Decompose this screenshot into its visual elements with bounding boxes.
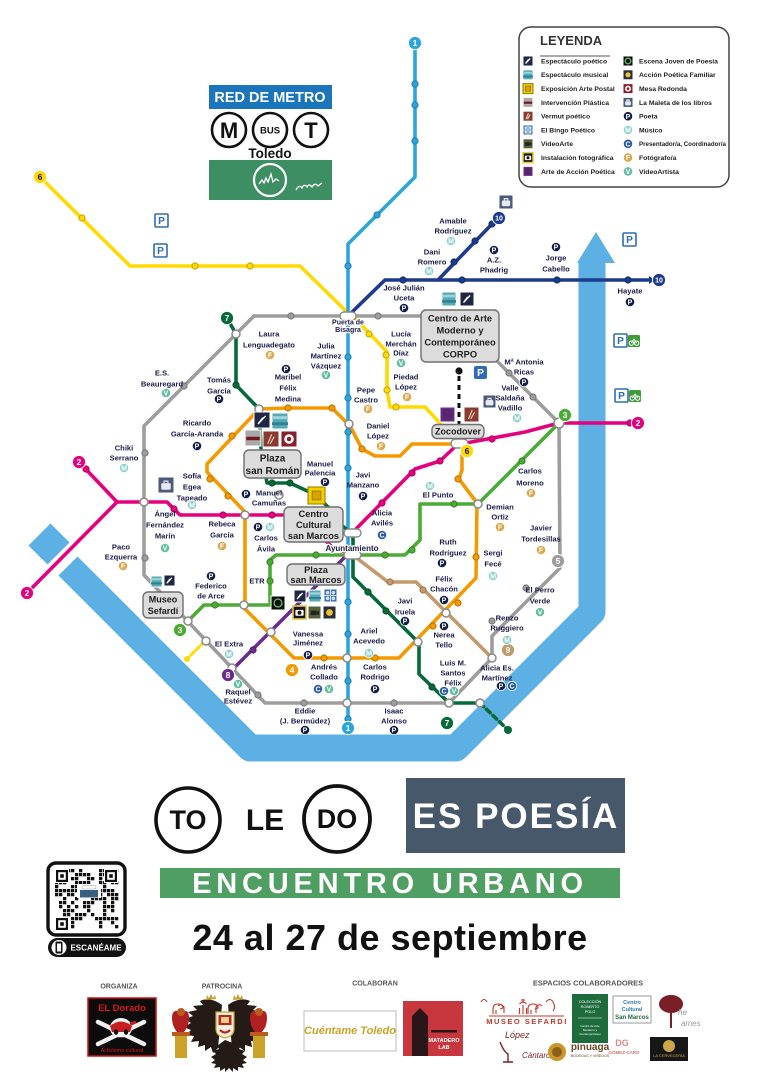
svg-text:Díaz: Díaz [393, 349, 409, 358]
svg-text:F: F [121, 564, 126, 571]
svg-text:Jorge: Jorge [546, 254, 567, 263]
svg-text:F: F [379, 444, 384, 451]
svg-text:Acevedo: Acevedo [353, 637, 385, 646]
svg-text:Phadrig: Phadrig [480, 266, 509, 275]
svg-text:Ezquerra: Ezquerra [105, 553, 138, 562]
svg-text:Centro de Arte: Centro de Arte [428, 313, 492, 323]
svg-text:T: T [304, 118, 318, 143]
svg-text:Laura: Laura [259, 330, 280, 339]
svg-text:P: P [628, 300, 633, 307]
svg-text:F: F [626, 155, 631, 162]
svg-text:Mª Antonia: Mª Antonia [504, 358, 544, 367]
svg-text:P: P [618, 391, 625, 402]
svg-text:M: M [366, 651, 372, 658]
svg-text:C: C [441, 689, 446, 696]
svg-text:Ariel: Ariel [361, 627, 378, 636]
svg-text:Federico: Federico [195, 582, 227, 591]
svg-text:M: M [448, 239, 454, 246]
svg-text:El Perro: El Perro [525, 586, 554, 595]
svg-text:P: P [499, 684, 504, 691]
svg-text:Contemporáneo: Contemporáneo [579, 1032, 601, 1036]
svg-text:Merchán: Merchán [385, 340, 417, 349]
svg-text:F: F [366, 407, 371, 414]
svg-text:Demian: Demian [486, 503, 514, 512]
svg-text:José Julián: José Julián [383, 284, 425, 293]
svg-text:Hayate: Hayate [618, 287, 643, 296]
svg-text:Poeta: Poeta [639, 114, 658, 121]
svg-text:P: P [256, 525, 261, 532]
svg-text:M: M [189, 503, 195, 510]
svg-text:Fecé: Fecé [484, 560, 501, 569]
svg-text:La Maleta de los libros: La Maleta de los libros [639, 100, 712, 107]
svg-text:Sefardí: Sefardí [148, 606, 179, 616]
svg-text:Andrés: Andrés [311, 663, 337, 672]
svg-text:F: F [220, 544, 225, 551]
svg-text:Carlos: Carlos [518, 467, 542, 476]
svg-text:F: F [268, 353, 273, 360]
svg-text:9: 9 [506, 645, 511, 655]
svg-text:Rodríguez: Rodríguez [429, 549, 466, 558]
svg-text:P: P [440, 561, 445, 568]
svg-text:Ricardo: Ricardo [183, 419, 212, 428]
svg-text:P: P [617, 336, 624, 347]
svg-text:Ávila: Ávila [257, 545, 276, 554]
svg-text:Dani: Dani [424, 248, 440, 257]
svg-text:P: P [477, 368, 484, 379]
svg-text:Tordesillas: Tordesillas [521, 535, 561, 544]
svg-text:C: C [509, 684, 514, 691]
svg-text:Daniel: Daniel [367, 422, 390, 431]
svg-text:C: C [379, 533, 384, 540]
svg-text:P: P [244, 492, 249, 499]
svg-text:Vanessa: Vanessa [293, 630, 324, 639]
svg-text:M: M [514, 416, 520, 423]
svg-text:Acción Poética Familiar: Acción Poética Familiar [639, 72, 716, 79]
svg-text:Bisagra: Bisagra [335, 327, 361, 334]
svg-text:M: M [426, 269, 432, 276]
svg-text:Sergi: Sergi [484, 549, 503, 558]
svg-text:24 al 27 de septiembre: 24 al 27 de septiembre [192, 917, 587, 958]
svg-text:C: C [625, 141, 630, 148]
svg-text:Javi: Javi [398, 597, 413, 606]
svg-text:Ricas: Ricas [514, 368, 534, 377]
svg-text:P: P [306, 653, 311, 660]
svg-text:P: P [157, 246, 164, 257]
svg-text:MATADERO: MATADERO [429, 1038, 461, 1044]
svg-text:P: P [554, 245, 559, 252]
svg-text:ESPACIOS COLABORADORES: ESPACIOS COLABORADORES [533, 979, 643, 988]
svg-text:Intervención Plástica: Intervención Plástica [541, 100, 609, 107]
svg-text:3: 3 [563, 410, 568, 420]
svg-text:10: 10 [655, 278, 663, 285]
svg-text:Cultural: Cultural [296, 520, 331, 530]
svg-text:Julia: Julia [317, 342, 335, 351]
svg-text:2: 2 [77, 457, 82, 467]
svg-text:Eddie: Eddie [295, 707, 316, 716]
svg-text:Ruggiero: Ruggiero [490, 624, 524, 633]
svg-text:V: V [327, 687, 332, 694]
svg-text:7: 7 [445, 718, 450, 728]
svg-text:Javi: Javi [356, 471, 371, 480]
svg-text:Mesa Redonda: Mesa Redonda [639, 86, 687, 93]
svg-text:Presentador/a, Coordinador/a: Presentador/a, Coordinador/a [639, 141, 727, 148]
svg-text:LA CERVECERÍA: LA CERVECERÍA [653, 1053, 685, 1058]
svg-text:Vermut poético: Vermut poético [541, 114, 590, 121]
svg-text:Isaac: Isaac [384, 707, 403, 716]
svg-text:Centro: Centro [299, 509, 329, 519]
svg-text:P: P [402, 306, 407, 313]
svg-text:ESCANÉAME: ESCANÉAME [70, 944, 122, 953]
svg-text:Estévez: Estévez [224, 697, 252, 706]
svg-text:ES POESÍA: ES POESÍA [413, 796, 620, 836]
svg-text:Chiki: Chiki [115, 444, 134, 453]
svg-text:C: C [315, 687, 320, 694]
svg-text:Manuel: Manuel [256, 489, 282, 498]
svg-text:Moderno y: Moderno y [436, 325, 484, 335]
svg-text:Camuñas: Camuñas [252, 499, 286, 508]
svg-text:Centro: Centro [623, 1000, 641, 1006]
svg-text:López: López [395, 383, 417, 392]
svg-text:Lenguadegato: Lenguadegato [243, 341, 295, 350]
svg-text:7: 7 [225, 313, 230, 323]
svg-text:TO: TO [169, 805, 206, 835]
svg-text:Moreno: Moreno [516, 479, 544, 488]
svg-text:M: M [504, 638, 510, 645]
svg-text:MUSEO SEFARDI: MUSEO SEFARDI [486, 1017, 568, 1026]
svg-text:ETR: ETR [249, 577, 265, 586]
svg-text:Nerea: Nerea [433, 631, 455, 640]
svg-text:ROBERTO: ROBERTO [581, 1005, 600, 1009]
svg-text:Carlos: Carlos [254, 534, 278, 543]
svg-text:Palencia: Palencia [305, 469, 337, 478]
svg-text:Ángel: Ángel [154, 510, 175, 519]
svg-text:V: V [236, 682, 241, 689]
svg-text:P: P [626, 114, 631, 121]
svg-text:Santos: Santos [440, 669, 465, 678]
svg-text:(J. Bermúdez): (J. Bermúdez) [280, 717, 331, 726]
svg-text:san Marcos: san Marcos [290, 575, 341, 585]
svg-text:Alicia: Alicia [372, 509, 393, 518]
svg-text:M: M [121, 466, 127, 473]
svg-text:El Extra: El Extra [215, 640, 244, 649]
svg-text:RED DE METRO: RED DE METRO [214, 90, 325, 106]
svg-text:DO: DO [317, 804, 358, 834]
svg-text:Piedad: Piedad [394, 373, 419, 382]
svg-text:he: he [678, 1008, 687, 1017]
svg-text:V: V [164, 391, 169, 398]
svg-text:ames: ames [681, 1019, 701, 1028]
svg-text:F: F [405, 395, 410, 402]
svg-text:CORPO: CORPO [443, 349, 477, 359]
svg-text:V: V [626, 169, 631, 176]
svg-text:V: V [452, 689, 457, 696]
svg-text:Plaza: Plaza [304, 565, 329, 575]
svg-text:DG: DG [615, 1038, 629, 1048]
svg-text:LEYENDA: LEYENDA [540, 33, 603, 48]
svg-text:P: P [158, 216, 165, 227]
svg-text:P: P [361, 494, 366, 501]
svg-text:López: López [367, 432, 389, 441]
svg-text:Beauregard: Beauregard [141, 380, 184, 389]
svg-text:2: 2 [636, 418, 641, 428]
svg-text:2: 2 [25, 588, 30, 598]
svg-text:Espectáculo musical: Espectáculo musical [541, 72, 608, 79]
svg-text:Félix: Félix [435, 575, 453, 584]
svg-text:3: 3 [178, 625, 183, 635]
svg-text:Jiménez: Jiménez [293, 639, 323, 648]
svg-text:VideoArte: VideoArte [541, 141, 573, 148]
svg-text:Plaza: Plaza [260, 453, 286, 464]
svg-text:Romero: Romero [418, 258, 447, 267]
svg-text:P: P [492, 248, 497, 255]
svg-text:VideoArtista: VideoArtista [639, 169, 679, 176]
svg-text:Vadillo: Vadillo [498, 404, 523, 413]
svg-text:pinuaga: pinuaga [571, 1042, 610, 1053]
svg-text:Medina: Medina [275, 395, 302, 404]
svg-text:LE: LE [246, 804, 284, 837]
svg-text:Pepe: Pepe [357, 386, 375, 395]
svg-text:6: 6 [38, 172, 43, 182]
svg-text:Serrano: Serrano [110, 454, 139, 463]
svg-text:Museo: Museo [149, 594, 178, 604]
svg-text:Manzano: Manzano [347, 481, 380, 490]
svg-text:P: P [195, 444, 200, 451]
svg-text:M: M [490, 574, 496, 581]
svg-text:LAB: LAB [438, 1045, 449, 1051]
svg-text:E.S.: E.S. [155, 369, 169, 378]
svg-text:Carlos: Carlos [363, 663, 387, 672]
svg-text:Alonso: Alonso [381, 717, 407, 726]
svg-text:10: 10 [495, 216, 503, 223]
svg-text:Javier: Javier [530, 524, 552, 533]
svg-text:Escena Joven de Poesía: Escena Joven de Poesía [639, 58, 718, 65]
svg-text:M: M [427, 484, 433, 491]
svg-text:Cántaro: Cántaro [522, 1051, 551, 1060]
svg-text:Martínez: Martínez [482, 674, 513, 683]
svg-text:Renzo: Renzo [496, 614, 519, 623]
svg-text:Instalación fotográfica: Instalación fotográfica [541, 155, 614, 162]
svg-text:EL Dorado: EL Dorado [98, 1003, 146, 1014]
svg-text:Félix: Félix [279, 384, 297, 393]
svg-text:García-Aranda: García-Aranda [171, 430, 224, 439]
svg-text:Ortiz: Ortiz [491, 513, 509, 522]
svg-text:Zocodover: Zocodover [435, 427, 482, 437]
svg-text:El Punto: El Punto [423, 491, 454, 500]
svg-text:V: V [163, 546, 168, 553]
svg-text:de Arce: de Arce [197, 592, 225, 601]
svg-text:ORGANIZA: ORGANIZA [100, 984, 137, 991]
svg-text:P: P [373, 687, 378, 694]
svg-text:Cultural: Cultural [622, 1007, 643, 1013]
svg-text:M: M [220, 118, 238, 143]
svg-text:Espectáculo poético: Espectáculo poético [541, 58, 607, 65]
svg-text:Rebeca: Rebeca [208, 520, 236, 529]
svg-text:P: P [626, 235, 633, 246]
svg-text:P: P [442, 624, 447, 631]
svg-text:Exposición Arte Postal: Exposición Arte Postal [541, 86, 615, 93]
svg-text:M: M [625, 128, 631, 135]
svg-text:P: P [392, 728, 397, 735]
svg-text:Activismo cultural: Activismo cultural [101, 1048, 144, 1054]
svg-text:López: López [505, 1030, 530, 1040]
svg-text:M: M [226, 652, 232, 659]
svg-text:P: P [522, 380, 527, 387]
svg-text:Avilés: Avilés [371, 519, 393, 528]
svg-text:4: 4 [290, 665, 295, 675]
svg-text:Rodrigo: Rodrigo [360, 673, 389, 682]
svg-text:Ruth: Ruth [439, 538, 457, 547]
svg-text:Iruela: Iruela [395, 608, 416, 617]
svg-text:Valle: Valle [501, 384, 518, 393]
svg-text:san Román: san Román [246, 466, 300, 477]
svg-text:V: V [538, 610, 543, 617]
svg-text:Luis M.: Luis M. [440, 659, 466, 668]
svg-text:Castro: Castro [354, 396, 378, 405]
svg-text:V: V [399, 361, 404, 368]
svg-text:Cabello: Cabello [542, 265, 570, 274]
svg-text:1: 1 [413, 38, 418, 48]
svg-text:COLECCIÓN: COLECCIÓN [579, 999, 602, 1004]
svg-text:Collado: Collado [310, 673, 338, 682]
svg-text:ENCUENTRO URBANO: ENCUENTRO URBANO [192, 868, 588, 900]
svg-text:5: 5 [556, 556, 561, 566]
svg-text:COLABORAN: COLABORAN [352, 981, 398, 988]
svg-text:Chacón: Chacón [430, 585, 458, 594]
svg-text:Lucía: Lucía [391, 330, 412, 339]
svg-text:BUS: BUS [260, 125, 280, 136]
svg-text:Rodríguez: Rodríguez [434, 227, 471, 236]
svg-text:Puerta de: Puerta de [332, 320, 364, 327]
svg-text:Manuel: Manuel [307, 460, 333, 469]
svg-text:P: P [284, 367, 289, 374]
svg-text:F: F [498, 525, 503, 532]
svg-text:F: F [529, 491, 534, 498]
svg-text:P: P [217, 397, 222, 404]
svg-text:F: F [539, 548, 544, 555]
svg-text:Amable: Amable [439, 217, 466, 226]
svg-text:San Marcos: San Marcos [615, 1015, 649, 1021]
svg-text:Paco: Paco [112, 543, 131, 552]
svg-text:Martínez: Martínez [311, 352, 342, 361]
svg-text:BODEGAS Y VIÑEDOS: BODEGAS Y VIÑEDOS [571, 1053, 610, 1058]
svg-text:P: P [303, 728, 308, 735]
svg-text:Músico: Músico [639, 127, 662, 134]
svg-text:GÓMEZ-CARO: GÓMEZ-CARO [609, 1049, 640, 1055]
svg-text:6: 6 [465, 446, 470, 456]
svg-text:Verde: Verde [530, 597, 551, 606]
svg-text:Vázquez: Vázquez [311, 362, 342, 371]
svg-text:Sofía: Sofía [183, 472, 202, 481]
svg-text:Contemporáneo: Contemporáneo [424, 337, 496, 347]
svg-text:P: P [209, 574, 214, 581]
svg-text:Tomás: Tomás [207, 376, 231, 385]
svg-text:P: P [403, 619, 408, 626]
svg-text:8: 8 [226, 670, 231, 680]
svg-text:san Marcos: san Marcos [288, 531, 339, 541]
svg-text:Arte de Acción Poética: Arte de Acción Poética [541, 169, 615, 176]
svg-text:Egea: Egea [183, 483, 202, 492]
svg-text:Toledo: Toledo [248, 146, 291, 161]
svg-text:M: M [267, 525, 273, 532]
svg-text:Fernández: Fernández [146, 521, 184, 530]
svg-text:García: García [210, 531, 234, 540]
svg-text:Cuéntame Toledo: Cuéntame Toledo [304, 1025, 396, 1037]
svg-text:Saldaña: Saldaña [495, 394, 525, 403]
svg-text:Tello: Tello [435, 641, 453, 650]
svg-text:Maribel: Maribel [275, 373, 302, 382]
svg-text:Fotógrafo/a: Fotógrafo/a [639, 155, 677, 162]
svg-text:P: P [442, 598, 447, 605]
svg-text:POLO: POLO [585, 1010, 596, 1014]
svg-text:A.Z.: A.Z. [487, 256, 501, 265]
svg-text:Ayuntamiento: Ayuntamiento [325, 544, 378, 553]
svg-text:V: V [324, 373, 329, 380]
svg-text:P: P [323, 480, 328, 487]
svg-text:El Bingo Poético: El Bingo Poético [541, 127, 595, 134]
svg-text:1: 1 [346, 723, 351, 733]
svg-text:Uceta: Uceta [394, 294, 415, 303]
svg-text:PATROCINA: PATROCINA [202, 984, 243, 991]
svg-text:Alicia Es.: Alicia Es. [480, 664, 514, 673]
svg-text:Marín: Marín [155, 532, 176, 541]
